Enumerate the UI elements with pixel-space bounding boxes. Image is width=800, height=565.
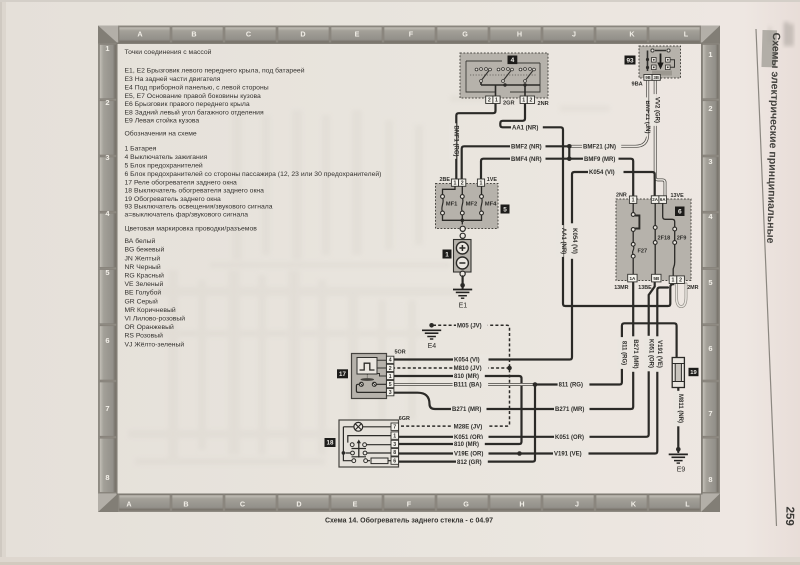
svg-text:BMF21 (JN): BMF21 (JN) [644,100,650,133]
svg-text:5 Блок предохранителей: 5 Блок предохранителей [125,162,203,170]
svg-text:7: 7 [105,404,109,413]
svg-text:7: 7 [393,425,396,431]
svg-text:H: H [517,30,522,39]
svg-text:Е1, Е2 Брызговик левого передн: Е1, Е2 Брызговик левого переднего крыла,… [125,67,305,75]
svg-text:6: 6 [393,458,396,464]
svg-text:810 (MR): 810 (MR) [454,442,479,448]
svg-text:B111 (BA): B111 (BA) [454,383,482,389]
svg-text:VI Лилово-розовый: VI Лилово-розовый [125,315,186,323]
svg-text:6 Блок предохранителей со стор: 6 Блок предохранителей со стороны пассаж… [125,170,382,178]
svg-text:G: G [462,30,468,39]
svg-text:Е3 На задней части двигателя: Е3 На задней части двигателя [125,75,221,83]
svg-text:2MR: 2MR [687,285,698,291]
svg-text:1: 1 [495,98,498,104]
svg-text:Схема 14. Обогреватель заднего: Схема 14. Обогреватель заднего стекла - … [325,517,493,525]
svg-text:F: F [409,30,414,39]
svg-text:6GR: 6GR [399,416,410,422]
svg-text:F: F [407,500,412,509]
svg-text:B: B [183,500,188,509]
svg-text:2: 2 [708,104,712,113]
svg-text:RS Розовый: RS Розовый [125,332,164,340]
svg-text:18: 18 [327,440,334,447]
svg-text:8: 8 [105,473,109,482]
svg-text:Е4: Е4 [428,343,437,350]
svg-text:4: 4 [389,358,392,364]
svg-text:1: 1 [522,98,525,104]
svg-text:2: 2 [529,98,532,104]
svg-text:8: 8 [708,475,712,484]
svg-text:RG Красный: RG Красный [125,272,165,280]
svg-text:Е4 Под приборной панелью, с ле: Е4 Под приборной панелью, с левой сторон… [125,84,269,92]
svg-text:7: 7 [708,409,712,418]
svg-text:B: B [191,30,196,39]
svg-text:93 Выключатель освещения/звуко: 93 Выключатель освещения/звукового сигна… [125,204,273,211]
svg-text:9B: 9B [645,75,650,80]
svg-text:5OR: 5OR [395,350,406,356]
svg-text:19: 19 [690,370,697,376]
svg-text:1: 1 [445,251,449,258]
svg-text:VJ Жёлто-зеленый: VJ Жёлто-зеленый [125,340,185,348]
svg-text:2BE: 2BE [440,177,451,183]
svg-text:8: 8 [393,450,396,456]
svg-text:4 Выключатель зажигания: 4 Выключатель зажигания [125,154,208,161]
svg-text:1: 1 [632,198,635,204]
svg-text:L: L [685,500,690,509]
svg-text:5: 5 [708,278,712,287]
svg-text:B271 (MR): B271 (MR) [452,407,481,413]
svg-text:VE Зеленый: VE Зеленый [125,280,164,288]
svg-text:A: A [126,500,131,509]
svg-text:19 Обогреватель заднего окна: 19 Обогреватель заднего окна [125,195,222,203]
svg-text:NR Черный: NR Черный [125,263,161,271]
svg-text:13VE: 13VE [671,193,685,199]
svg-text:Точки соединения с массой: Точки соединения с массой [125,48,212,56]
svg-text:5B: 5B [653,276,660,281]
svg-text:1VE: 1VE [487,177,498,183]
svg-text:13MR: 13MR [614,285,628,291]
svg-text:93: 93 [626,57,634,64]
svg-text:Обозначения на схеме: Обозначения на схеме [125,130,197,138]
svg-text:17: 17 [339,371,346,378]
svg-text:2: 2 [679,278,682,284]
svg-text:Е9 Левая стойка кузова: Е9 Левая стойка кузова [125,117,200,125]
svg-text:1: 1 [454,181,457,187]
svg-text:2A: 2A [652,197,658,202]
svg-text:13BE: 13BE [638,285,652,291]
svg-text:J: J [575,500,579,509]
svg-text:Е8 Задний левый угол багажного: Е8 Задний левый угол багажного отделения [125,108,264,116]
svg-text:E: E [355,30,360,39]
svg-text:AA1 (NR): AA1 (NR) [512,126,538,132]
svg-text:D: D [300,30,305,39]
svg-text:M05 (JV): M05 (JV) [457,324,482,330]
svg-text:2F9: 2F9 [677,236,687,242]
svg-text:MF1: MF1 [446,202,458,208]
svg-text:E: E [353,500,358,509]
svg-text:6: 6 [678,209,682,216]
svg-text:K: K [629,30,635,39]
svg-text:F27: F27 [638,249,648,255]
svg-text:2: 2 [461,181,464,187]
svg-text:1: 1 [708,50,712,59]
svg-text:2: 2 [105,98,109,107]
svg-text:JN Желтый: JN Желтый [125,254,161,262]
svg-text:5: 5 [389,382,392,388]
svg-text:810 (MR): 810 (MR) [454,374,479,380]
svg-text:2F18: 2F18 [658,236,671,242]
svg-text:VV2 (GR): VV2 (GR) [653,97,659,123]
svg-text:GR Серый: GR Серый [125,297,158,305]
svg-text:Е9: Е9 [677,467,686,474]
svg-text:K054 (VI): K054 (VI) [589,170,615,176]
svg-text:а=выключатель фар/звукового си: а=выключатель фар/звукового сигнала [125,211,249,218]
svg-text:BE Голубой: BE Голубой [125,289,162,297]
svg-text:B271 (MR): B271 (MR) [555,407,584,413]
svg-text:6A: 6A [660,197,666,202]
svg-text:5: 5 [105,268,109,277]
svg-text:1: 1 [389,374,392,380]
svg-text:811 (RG): 811 (RG) [559,383,583,389]
svg-text:BMF21 (JN): BMF21 (JN) [583,145,616,151]
svg-text:259: 259 [783,506,796,526]
svg-text:K051 (OR): K051 (OR) [648,339,654,368]
svg-text:Е1: Е1 [459,303,468,310]
svg-text:H: H [519,500,524,509]
svg-text:Цветовая маркировка проводки/р: Цветовая маркировка проводки/разъемов [125,225,258,232]
svg-text:1: 1 [105,44,109,53]
svg-text:OR Оранжевый: OR Оранжевый [125,323,175,331]
svg-text:K051 (OR): K051 (OR) [555,435,584,441]
svg-text:K: K [631,500,637,509]
svg-text:18 Выключатель обогревателя за: 18 Выключатель обогревателя заднего окна [125,187,265,195]
svg-text:812 (GR): 812 (GR) [457,460,482,466]
svg-text:AA1 (NR): AA1 (NR) [560,228,566,254]
svg-text:G: G [463,500,469,509]
svg-text:2: 2 [488,98,491,104]
svg-text:9BA: 9BA [632,82,643,88]
svg-text:3: 3 [389,390,392,396]
svg-text:A: A [137,30,142,39]
svg-text:ВА белый: ВА белый [125,237,156,245]
svg-text:6: 6 [708,344,712,353]
svg-text:17 Реле обогревателя заднего о: 17 Реле обогревателя заднего окна [125,179,238,187]
svg-text:C: C [240,500,245,509]
svg-text:5: 5 [503,206,507,213]
svg-text:BMF2 (NR): BMF2 (NR) [511,145,542,151]
svg-text:M811 (NR): M811 (NR) [677,394,683,423]
svg-text:L: L [684,30,689,39]
svg-text:1A: 1A [629,276,636,281]
svg-text:1: 1 [393,433,396,439]
svg-text:MF4: MF4 [485,202,497,208]
svg-text:2NR: 2NR [616,193,627,199]
svg-text:BG бежевый: BG бежевый [125,246,165,254]
svg-text:M28E (JV): M28E (JV) [454,424,483,430]
svg-text:2GR: 2GR [503,101,515,107]
svg-text:1 Батарея: 1 Батарея [125,146,157,153]
svg-text:811 (RG): 811 (RG) [621,341,627,365]
svg-text:3: 3 [105,153,109,162]
svg-text:J: J [572,30,576,39]
svg-text:V191 (VE): V191 (VE) [656,340,662,368]
svg-text:6: 6 [105,336,109,345]
svg-text:1: 1 [672,278,675,284]
svg-text:BMF1 (RG): BMF1 (RG) [453,126,459,157]
svg-text:3: 3 [708,157,712,166]
svg-text:BMF9 (MR): BMF9 (MR) [584,157,615,163]
svg-text:2NR: 2NR [538,101,549,107]
svg-text:V191 (VE): V191 (VE) [554,452,582,458]
svg-text:K054 (VI): K054 (VI) [571,228,577,254]
svg-text:B271 (MR): B271 (MR) [632,339,638,368]
svg-text:K054 (VI): K054 (VI) [454,358,480,364]
svg-text:MR Коричневый: MR Коричневый [125,306,176,314]
svg-text:MF2: MF2 [466,202,478,208]
svg-text:D: D [296,500,301,509]
svg-text:1: 1 [480,181,483,187]
svg-text:2: 2 [389,366,392,372]
svg-text:4: 4 [511,57,515,64]
svg-text:C: C [246,30,251,39]
svg-text:Е6 Брызговик правого переднего: Е6 Брызговик правого переднего крыла [125,101,250,108]
svg-text:Е5, Е7 Основание правой бокови: Е5, Е7 Основание правой боковины кузова [125,92,262,100]
svg-text:BMF4 (NR): BMF4 (NR) [511,157,542,163]
svg-text:3: 3 [393,442,396,448]
svg-text:3B: 3B [654,75,659,80]
